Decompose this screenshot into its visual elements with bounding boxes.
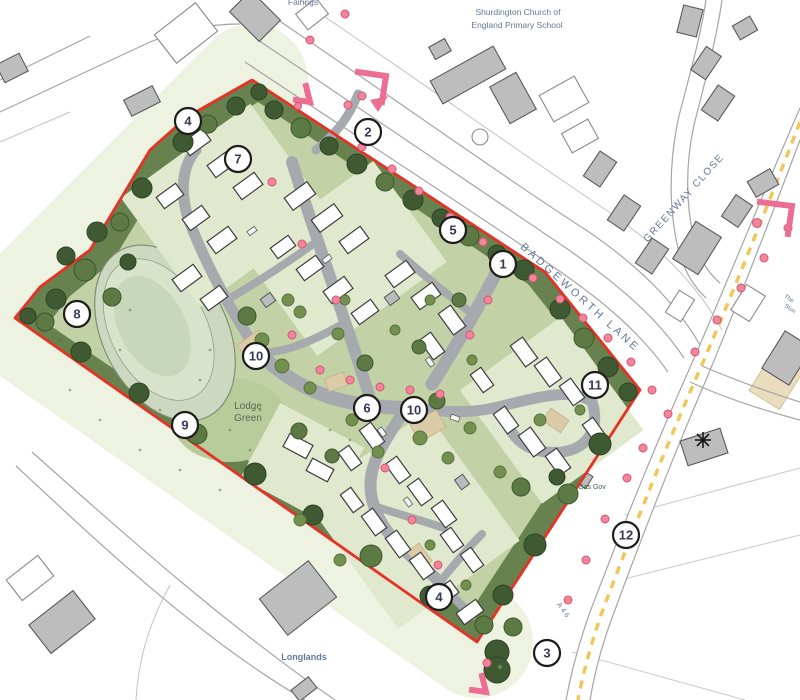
boundary-dot: [415, 187, 423, 195]
boundary-dot: [579, 314, 587, 322]
tree: [132, 178, 152, 198]
school-label-line1: Shurdington Church of: [475, 7, 561, 17]
tree: [244, 463, 266, 485]
tree: [265, 101, 283, 119]
tree: [357, 355, 373, 371]
tree: [347, 154, 367, 174]
boundary-dot: [713, 316, 721, 324]
marker-number: 4: [435, 590, 443, 605]
tree: [413, 431, 427, 445]
boundary-dot: [388, 165, 396, 173]
marker-number: 10: [407, 403, 421, 418]
tree: [493, 585, 513, 605]
grass-speck: [99, 419, 102, 422]
boundary-dot: [376, 383, 384, 391]
tree: [442, 452, 454, 464]
gas-gov-label: Gas Gov: [578, 484, 606, 491]
boundary-dot: [564, 596, 572, 604]
boundary-dot: [306, 36, 314, 44]
boundary-dot: [346, 376, 354, 384]
boundary-dot: [691, 348, 699, 356]
keyplan-marker-3: 3: [534, 640, 560, 666]
keyplan-marker-11: 11: [582, 372, 608, 398]
marker-number: 7: [234, 152, 241, 167]
tree: [498, 665, 502, 669]
grass-speck: [59, 339, 62, 342]
tree: [251, 84, 267, 100]
grass-speck: [209, 349, 212, 352]
marker-number: 6: [363, 401, 370, 416]
boundary-dot: [381, 464, 389, 472]
tree: [291, 118, 311, 138]
tree: [524, 534, 546, 556]
grass-speck: [199, 379, 202, 382]
marker-number: 12: [619, 528, 633, 543]
grass-speck: [179, 469, 182, 472]
tree: [372, 446, 384, 458]
boundary-dot: [344, 101, 352, 109]
marker-number: 9: [181, 418, 188, 433]
boundary-dot: [484, 296, 492, 304]
boundary-dot: [582, 556, 590, 564]
tree: [103, 288, 121, 306]
asterisk-symbol: [695, 432, 711, 448]
tree: [71, 342, 91, 362]
tree: [376, 173, 394, 191]
keyplan-marker-10: 10: [243, 343, 269, 369]
tree: [534, 414, 546, 426]
tree: [494, 466, 506, 478]
school-ground-feature: [472, 129, 488, 145]
greenway-close-label: GREENWAY CLOSE: [642, 152, 727, 245]
tree: [461, 580, 471, 590]
boundary-dot: [466, 331, 474, 339]
tree: [340, 295, 350, 305]
grass-speck: [139, 449, 142, 452]
marker-number: 4: [184, 114, 192, 129]
boundary-dot: [288, 331, 296, 339]
tree: [304, 382, 316, 394]
marker-number: 11: [588, 378, 602, 393]
edge-label-partial1: The: [783, 294, 795, 305]
tree: [425, 295, 435, 305]
keyplan-marker-6: 6: [354, 395, 380, 421]
tree: [129, 383, 149, 403]
marker-number: 10: [249, 349, 263, 364]
boundary-dot: [406, 386, 414, 394]
tree: [475, 616, 493, 634]
boundary-dot: [529, 274, 537, 282]
longlands-label: Longlands: [281, 652, 327, 662]
school-label-line2: England Primary School: [471, 20, 562, 30]
edge-label-partial2: Ston: [783, 303, 797, 315]
a46-label: A46: [555, 602, 571, 621]
boundary-dot: [434, 561, 442, 569]
marker-number: 8: [73, 307, 80, 322]
tree: [589, 433, 611, 455]
keyplan-marker-4: 4: [426, 584, 452, 610]
tree: [320, 137, 338, 155]
boundary-dot: [601, 515, 609, 523]
marker-number: 5: [449, 223, 456, 238]
tree: [549, 469, 565, 485]
site-plan-map: 472518106101191234 Shurdington Church of…: [0, 0, 800, 700]
fairings-label: Fairings: [288, 0, 318, 7]
tree: [619, 383, 637, 401]
keyplan-marker-9: 9: [172, 412, 198, 438]
marker-number: 1: [499, 257, 506, 272]
tree: [504, 618, 522, 636]
tree: [111, 213, 129, 231]
tree: [20, 308, 36, 324]
grass-speck: [229, 429, 232, 432]
tree: [74, 259, 96, 281]
keyplan-marker-12: 12: [613, 522, 639, 548]
boundary-dot: [623, 474, 631, 482]
tree: [238, 307, 256, 325]
tree: [227, 97, 245, 115]
keyplan-marker-8: 8: [64, 301, 90, 327]
tree: [360, 545, 382, 567]
tree: [120, 254, 136, 270]
tree: [282, 294, 294, 306]
keyplan-marker-5: 5: [440, 217, 466, 243]
boundary-dot: [760, 254, 768, 262]
marker-number: 2: [364, 125, 371, 140]
boundary-dot: [664, 410, 672, 418]
boundary-dot: [268, 178, 276, 186]
boundary-dot: [316, 366, 324, 374]
lodge-green-label-line2: Green: [234, 413, 262, 424]
grass-speck: [129, 309, 132, 312]
tree: [87, 222, 107, 242]
tree: [173, 132, 193, 152]
grass-speck: [349, 439, 352, 442]
boundary-dot: [408, 516, 416, 524]
keyplan-marker-4: 4: [175, 108, 201, 134]
grass-speck: [219, 489, 222, 492]
grass-speck: [249, 449, 252, 452]
tree: [57, 247, 75, 265]
tree: [294, 306, 306, 318]
grass-speck: [69, 389, 72, 392]
tree: [36, 313, 54, 331]
boundary-dot: [483, 659, 491, 667]
tree: [334, 554, 346, 566]
tree: [574, 328, 594, 348]
tree: [412, 340, 426, 354]
boundary-dot: [479, 238, 487, 246]
boundary-dot: [604, 334, 612, 342]
keyplan-marker-7: 7: [225, 146, 251, 172]
keyplan-marker-10: 10: [401, 397, 427, 423]
boundary-dot: [556, 295, 564, 303]
boundary-dot: [648, 386, 656, 394]
tree: [325, 449, 339, 463]
keyplan-marker-1: 1: [490, 251, 516, 277]
map-canvas: 472518106101191234 Shurdington Church of…: [0, 0, 800, 700]
boundary-dot: [298, 240, 306, 248]
tree: [390, 325, 400, 335]
boundary-dot: [639, 444, 647, 452]
boundary-dot: [737, 284, 745, 292]
grass-speck: [119, 349, 122, 352]
tree: [425, 540, 435, 550]
tree: [332, 328, 344, 340]
keyplan-marker-2: 2: [355, 119, 381, 145]
tree: [294, 514, 306, 526]
tree: [46, 289, 66, 309]
tree: [291, 423, 307, 439]
tree: [575, 405, 585, 415]
boundary-dot: [332, 296, 340, 304]
boundary-dot: [627, 358, 635, 366]
tree: [452, 293, 466, 307]
boundary-dot: [436, 390, 444, 398]
tree: [558, 484, 578, 504]
boundary-dot: [341, 10, 349, 18]
lodge-green-label-line1: Lodge: [234, 401, 262, 412]
tree: [275, 359, 289, 373]
grass-speck: [329, 429, 332, 432]
tree: [512, 478, 530, 496]
tree: [464, 422, 476, 434]
tree: [467, 355, 477, 365]
marker-number: 3: [543, 646, 550, 661]
grass-speck: [159, 409, 162, 412]
